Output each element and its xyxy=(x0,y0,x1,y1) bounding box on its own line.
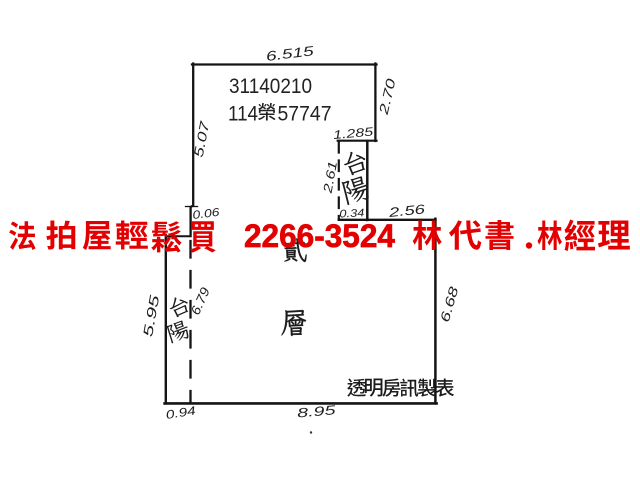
svg-text:5.95: 5.95 xyxy=(140,293,162,338)
svg-text:57747: 57747 xyxy=(278,102,332,126)
svg-text:2266-3524: 2266-3524 xyxy=(244,218,395,254)
svg-text:6.515: 6.515 xyxy=(265,43,315,64)
svg-text:6.68: 6.68 xyxy=(437,284,462,324)
svg-text:31140210: 31140210 xyxy=(229,74,312,98)
svg-text:2.70: 2.70 xyxy=(375,76,398,117)
svg-text:0.06: 0.06 xyxy=(192,207,221,222)
svg-text:2.61: 2.61 xyxy=(320,160,340,195)
svg-text:8.95: 8.95 xyxy=(296,402,337,420)
svg-text:0.94: 0.94 xyxy=(165,403,197,422)
svg-text:6.79: 6.79 xyxy=(188,285,213,317)
svg-text:114: 114 xyxy=(228,102,258,126)
svg-text:1.285: 1.285 xyxy=(333,125,374,142)
